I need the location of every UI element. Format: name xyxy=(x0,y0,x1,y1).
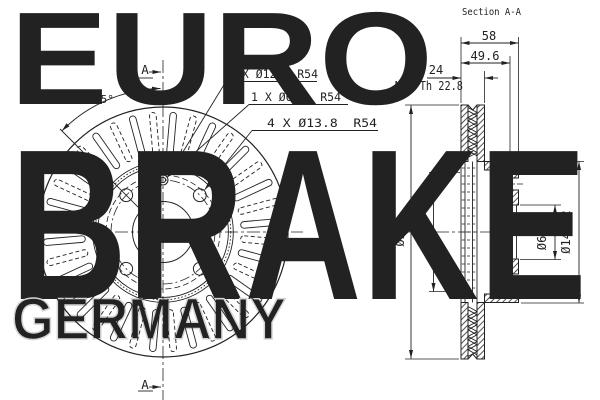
dim-hat-depth-label: 49.6 xyxy=(471,49,500,63)
dim-center-bore-label: Ø63.7 xyxy=(535,214,549,250)
dim-overall-width-label: 58 xyxy=(482,29,496,43)
section-marker-bottom-label: A xyxy=(141,377,149,392)
technical-drawing-page: EURO BRAKE GERMANY xyxy=(0,0,600,400)
dim-min-thickness-label: Min Th 22.8 xyxy=(395,79,463,93)
brake-disc-drawing: EURO BRAKE GERMANY xyxy=(0,0,600,400)
dim-hat-outer-diameter-label: Ø146.2 xyxy=(559,210,573,253)
dim-disc-thickness-label: 24 xyxy=(429,63,443,77)
watermark-germany: GERMANY xyxy=(12,287,286,352)
angle-45-label: 45° xyxy=(94,93,114,106)
section-title: Section A-A xyxy=(462,7,521,18)
callout-bolt-holes-label: 4 X Ø13.8 R54 xyxy=(267,116,377,130)
callout-pilot-outer-label: 1 X Ø12.6 R54 xyxy=(228,67,318,81)
dim-vent-inner-diameter-label: Ø136 xyxy=(415,218,429,247)
callout-pilot-inner-label: 1 X Ø6.5 R54 xyxy=(251,90,341,104)
section-marker-top-label: A xyxy=(141,62,149,77)
dim-outer-diameter-label: Ø260 xyxy=(393,218,407,247)
